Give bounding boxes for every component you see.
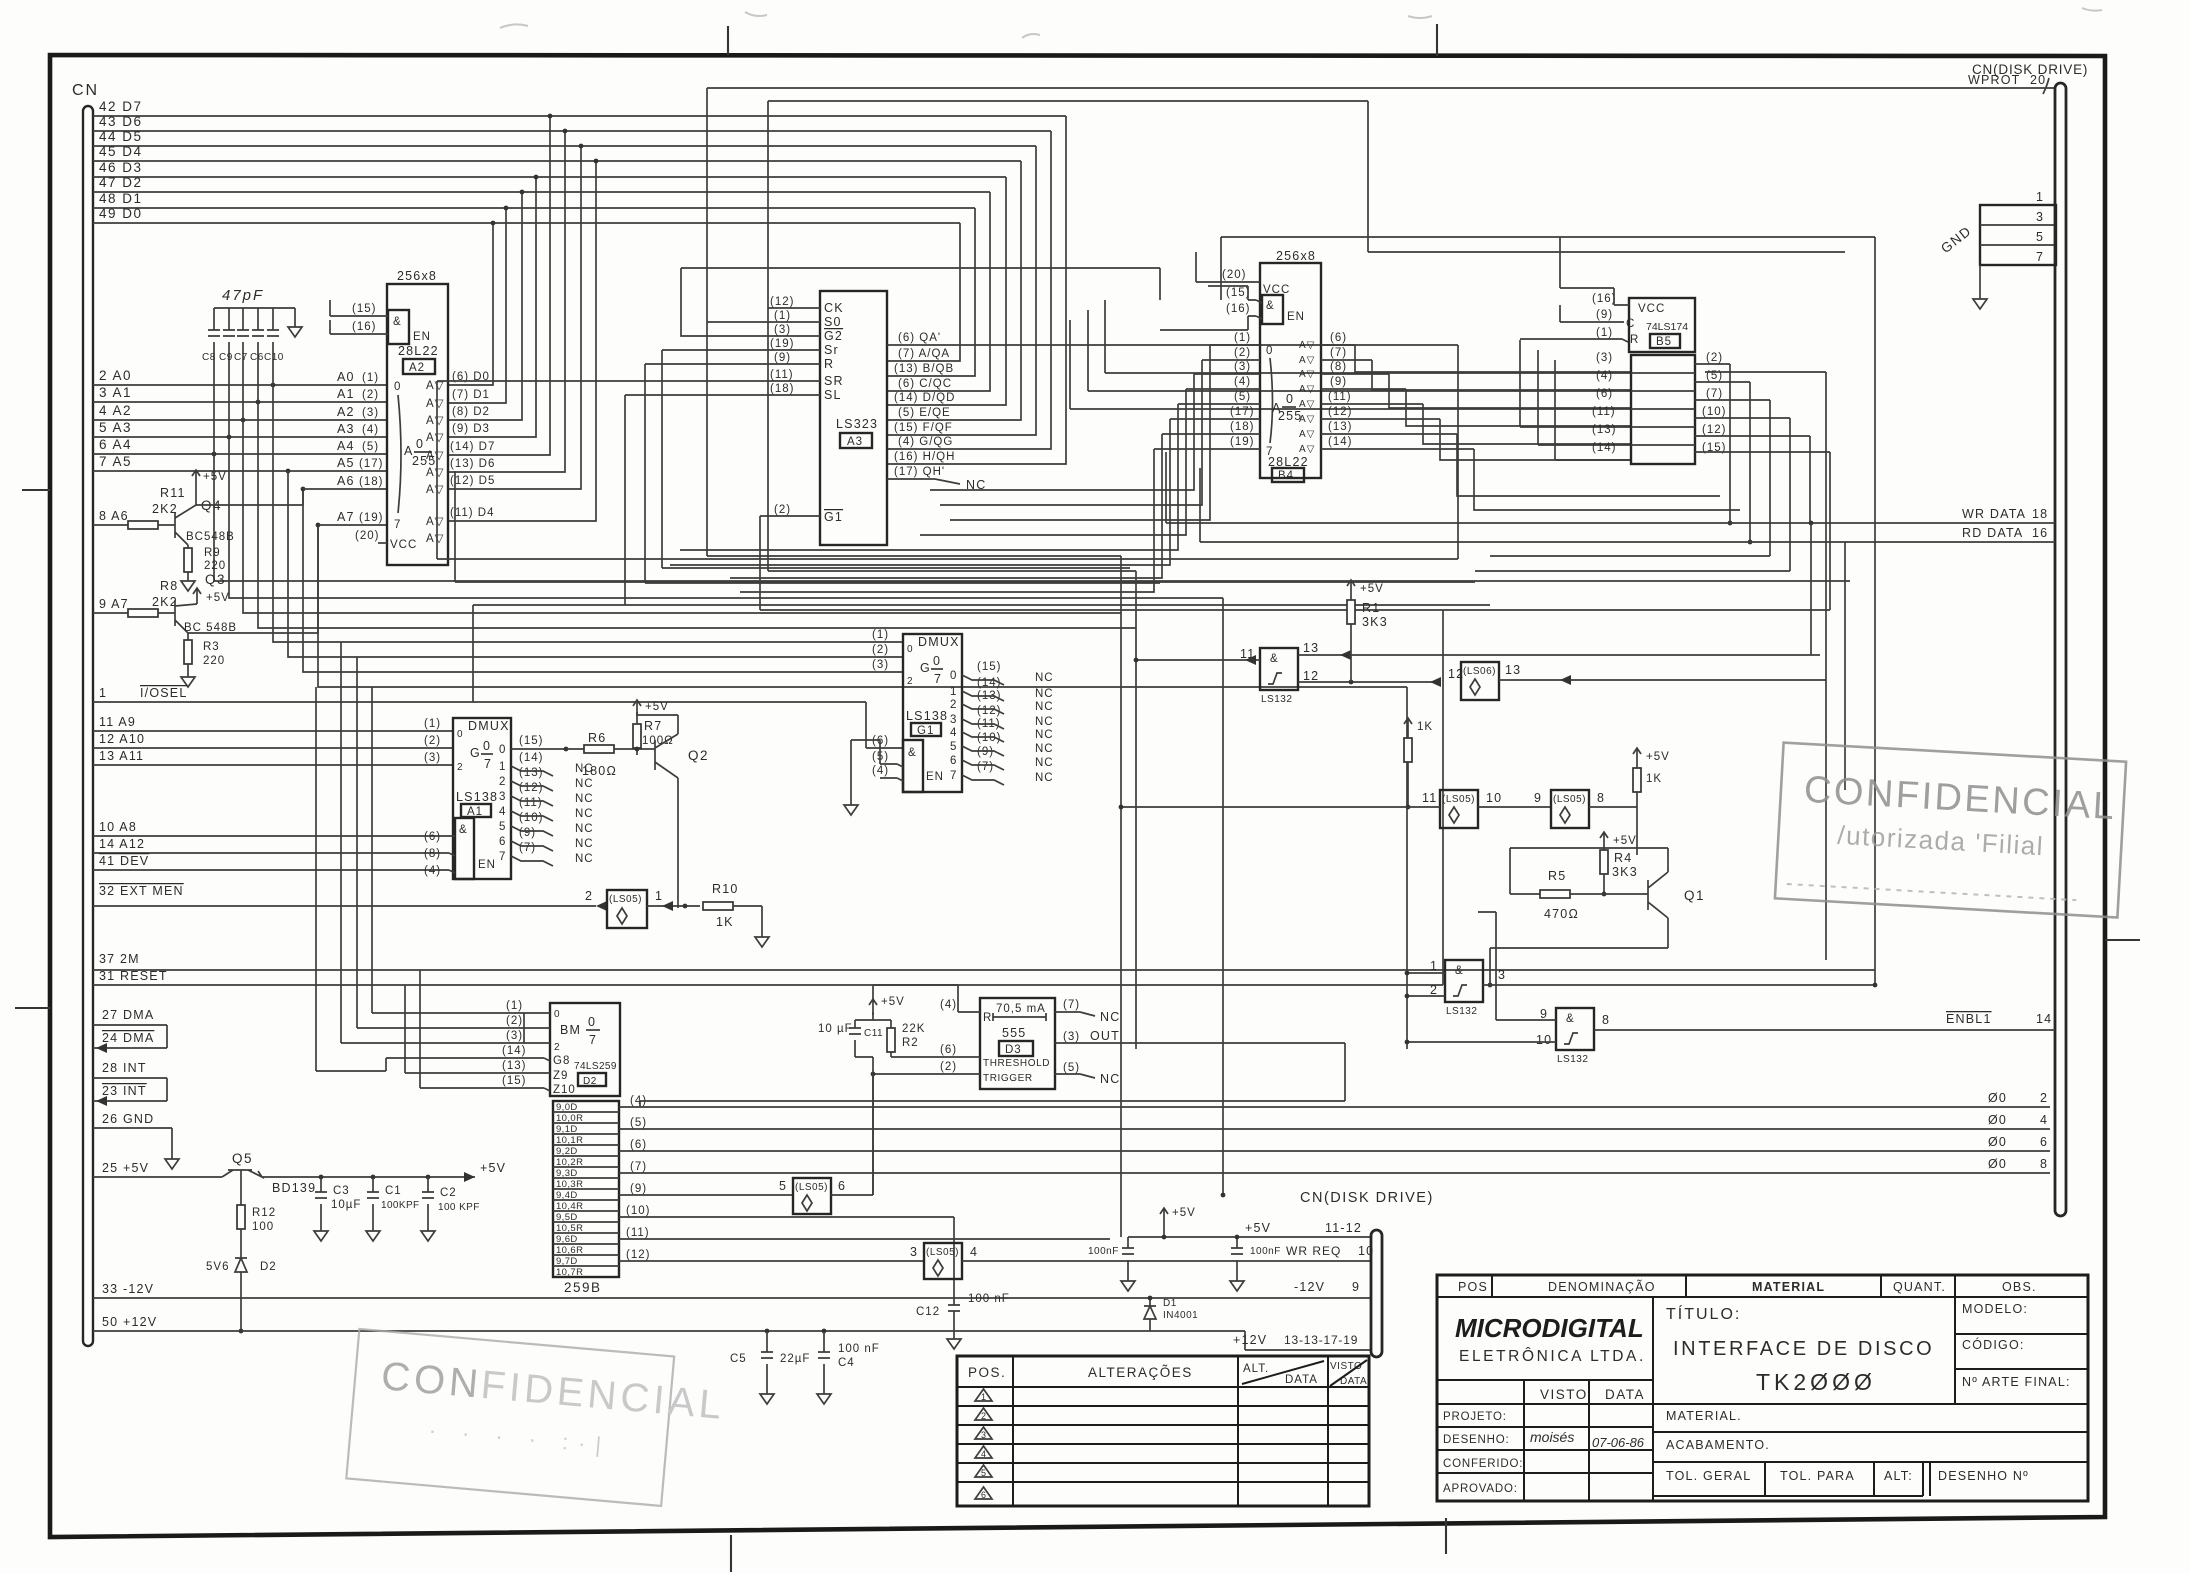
svg-text:NC: NC	[575, 778, 594, 790]
svg-text:NC: NC	[1035, 716, 1054, 728]
svg-text:S0: S0	[824, 315, 842, 329]
svg-text:0: 0	[554, 1009, 560, 1020]
svg-text:180Ω: 180Ω	[582, 764, 617, 778]
svg-text:VCC: VCC	[390, 539, 417, 551]
svg-text:MATERIAL.: MATERIAL.	[1666, 1409, 1742, 1423]
svg-text:R12: R12	[252, 1207, 276, 1219]
svg-text:10,5R: 10,5R	[556, 1223, 583, 1234]
svg-text:G1: G1	[917, 725, 934, 737]
svg-text:470Ω: 470Ω	[1544, 907, 1579, 921]
svg-text:R5: R5	[1548, 869, 1566, 883]
svg-text:(2): (2)	[1234, 347, 1251, 359]
svg-text:(3): (3)	[1063, 1031, 1080, 1043]
svg-text:(3): (3)	[362, 407, 379, 419]
svg-text:47pF: 47pF	[222, 287, 264, 304]
svg-text:2: 2	[457, 762, 463, 773]
svg-text:CONFERIDO:: CONFERIDO:	[1443, 1458, 1523, 1470]
svg-text:C4: C4	[838, 1357, 855, 1369]
svg-text:TÍTULO:: TÍTULO:	[1666, 1304, 1741, 1323]
svg-text:A5: A5	[337, 456, 355, 470]
svg-text:(1): (1)	[774, 310, 791, 322]
svg-text:OBS.: OBS.	[2002, 1280, 2037, 1294]
svg-text:5 A3: 5 A3	[99, 420, 132, 435]
svg-text:2: 2	[907, 676, 913, 687]
svg-text:(LS05): (LS05)	[1553, 794, 1586, 805]
svg-text:5: 5	[2036, 230, 2044, 244]
svg-text:ELETRÔNICA LTDA.: ELETRÔNICA LTDA.	[1459, 1348, 1646, 1365]
svg-text:IN4001: IN4001	[1163, 1310, 1198, 1321]
svg-text:10 A8: 10 A8	[99, 820, 137, 834]
svg-text:(9): (9)	[1330, 376, 1347, 388]
svg-text:46 D3: 46 D3	[99, 160, 143, 175]
svg-text:(9): (9)	[519, 827, 536, 839]
svg-text:7: 7	[589, 1033, 597, 1047]
svg-text:Sr: Sr	[824, 343, 839, 357]
svg-text:259B: 259B	[564, 1280, 602, 1295]
svg-text:12: 12	[1303, 669, 1319, 683]
svg-text:10: 10	[1486, 791, 1502, 805]
svg-text:4 A2: 4 A2	[99, 403, 132, 418]
svg-text:PROJETO:: PROJETO:	[1443, 1411, 1507, 1423]
svg-text:G: G	[920, 661, 931, 675]
svg-text:ALT.: ALT.	[1243, 1363, 1269, 1375]
svg-text:2 A0: 2 A0	[99, 368, 132, 383]
svg-text:10 µF: 10 µF	[818, 1023, 853, 1035]
svg-text:R9: R9	[204, 547, 221, 559]
svg-text:(18): (18)	[359, 476, 383, 488]
svg-text:1K: 1K	[1646, 773, 1662, 785]
svg-text:13 A11: 13 A11	[99, 749, 144, 763]
svg-text:100nF: 100nF	[1250, 1246, 1281, 1257]
svg-text:3K3: 3K3	[1362, 615, 1388, 629]
svg-text:TOL. GERAL: TOL. GERAL	[1666, 1469, 1751, 1483]
svg-text:(15): (15)	[519, 735, 543, 747]
svg-text:B4: B4	[1278, 470, 1294, 482]
svg-text:(LS05): (LS05)	[609, 894, 642, 905]
svg-text:(14): (14)	[519, 752, 543, 764]
svg-text:Ø0: Ø0	[1988, 1157, 2007, 1171]
svg-text:NC: NC	[575, 808, 594, 820]
svg-text:A1: A1	[337, 387, 355, 401]
svg-text:TK2ØØØ: TK2ØØØ	[1756, 1369, 1876, 1395]
svg-text:G1: G1	[824, 510, 843, 524]
svg-text:4: 4	[981, 1449, 986, 1459]
svg-text:(13) B/QB: (13) B/QB	[894, 363, 954, 375]
svg-text:2: 2	[554, 1042, 560, 1053]
svg-text:R4: R4	[1614, 851, 1632, 865]
svg-text:3: 3	[499, 791, 506, 803]
svg-text:NC: NC	[575, 838, 594, 850]
svg-text:(6): (6)	[424, 831, 441, 843]
svg-text:6: 6	[499, 836, 506, 848]
svg-text:(14): (14)	[977, 677, 1001, 689]
svg-text:100Ω: 100Ω	[642, 735, 674, 747]
svg-text:R: R	[824, 357, 834, 371]
svg-text:(5): (5)	[630, 1117, 647, 1129]
svg-text:C3: C3	[333, 1185, 350, 1197]
svg-text:1: 1	[655, 889, 663, 903]
svg-text:(18): (18)	[1230, 421, 1254, 433]
svg-text:(8): (8)	[1330, 361, 1347, 373]
svg-text:(5) E/QE: (5) E/QE	[898, 407, 951, 419]
svg-text:(5): (5)	[1063, 1062, 1080, 1074]
svg-text:(2): (2)	[774, 504, 791, 516]
svg-text:(2): (2)	[424, 735, 441, 747]
svg-text:(11): (11)	[770, 369, 794, 381]
svg-text:(11): (11)	[1592, 406, 1616, 418]
svg-text:(3): (3)	[774, 324, 791, 336]
svg-text:6: 6	[950, 755, 957, 767]
svg-text:(9): (9)	[977, 746, 994, 758]
svg-text:(13): (13)	[1592, 424, 1616, 436]
svg-text:WR REQ: WR REQ	[1286, 1244, 1341, 1258]
svg-text:(4): (4)	[362, 424, 379, 436]
svg-text:49 D0: 49 D0	[99, 206, 143, 221]
svg-text:C7: C7	[234, 352, 248, 363]
svg-text:A▽: A▽	[426, 450, 445, 462]
svg-text:(11) D4: (11) D4	[450, 507, 495, 519]
svg-text:7: 7	[950, 770, 957, 782]
svg-text:2: 2	[585, 889, 593, 903]
svg-text:R3: R3	[203, 641, 220, 653]
svg-text:(14) D/QD: (14) D/QD	[894, 392, 955, 404]
svg-text:0: 0	[907, 644, 913, 655]
svg-text:555: 555	[1002, 1026, 1026, 1040]
svg-text:10,1R: 10,1R	[556, 1135, 583, 1146]
svg-text:(2): (2)	[362, 389, 379, 401]
svg-text:DESENHO:: DESENHO:	[1443, 1434, 1509, 1446]
svg-text:C1: C1	[385, 1185, 402, 1197]
svg-text:32 EXT MEN: 32 EXT MEN	[99, 884, 184, 898]
svg-text:2: 2	[499, 776, 506, 788]
svg-text:12 A10: 12 A10	[99, 732, 145, 746]
svg-text:A2: A2	[409, 362, 425, 374]
svg-text:QUANT.: QUANT.	[1893, 1280, 1946, 1294]
svg-text:R1: R1	[1362, 601, 1380, 615]
svg-text:Ø0: Ø0	[1988, 1091, 2007, 1105]
svg-text:LS132: LS132	[1261, 694, 1292, 705]
svg-text:C10: C10	[264, 352, 284, 363]
svg-text:EN: EN	[478, 859, 496, 871]
svg-text:(2): (2)	[872, 644, 889, 656]
svg-text:(18): (18)	[770, 383, 794, 395]
svg-text:THRESHOLD: THRESHOLD	[983, 1058, 1050, 1069]
svg-text:4: 4	[970, 1245, 978, 1259]
svg-text:C8: C8	[202, 352, 216, 363]
svg-text:BD139: BD139	[272, 1181, 316, 1195]
svg-text:(3): (3)	[424, 752, 441, 764]
svg-text:7: 7	[934, 672, 942, 686]
svg-text:(1): (1)	[362, 372, 379, 384]
svg-text:9,6D: 9,6D	[556, 1234, 578, 1245]
svg-text:07-06-86: 07-06-86	[1592, 1435, 1645, 1450]
svg-text:+5V: +5V	[1360, 583, 1384, 595]
svg-text:(7): (7)	[630, 1161, 647, 1173]
svg-text:(17) QH': (17) QH'	[894, 466, 945, 478]
svg-text:+5V: +5V	[206, 592, 230, 604]
svg-text:26 GND: 26 GND	[102, 1112, 154, 1126]
svg-text:NC: NC	[575, 823, 594, 835]
svg-text:(LS05): (LS05)	[926, 1247, 959, 1258]
svg-text:(16) H/QH: (16) H/QH	[894, 451, 955, 463]
svg-text:0: 0	[483, 739, 491, 753]
svg-text:+12V: +12V	[1233, 1333, 1267, 1347]
svg-text:(7) D1: (7) D1	[452, 389, 490, 401]
svg-text:9,1D: 9,1D	[556, 1124, 578, 1135]
svg-text:R: R	[983, 1012, 992, 1024]
svg-text:2: 2	[1430, 983, 1438, 997]
svg-text:C6: C6	[250, 352, 264, 363]
svg-text:&: &	[459, 824, 468, 836]
svg-text:POS.: POS.	[968, 1365, 1006, 1380]
svg-text:7: 7	[499, 851, 506, 863]
svg-text:+5V: +5V	[881, 996, 905, 1008]
svg-text:3: 3	[950, 714, 957, 726]
svg-text:3: 3	[1498, 968, 1506, 982]
svg-text:MICRODIGITAL: MICRODIGITAL	[1455, 1313, 1644, 1343]
svg-text:9,7D: 9,7D	[556, 1256, 578, 1267]
svg-text:0: 0	[416, 437, 424, 451]
svg-text:2: 2	[981, 1411, 986, 1421]
svg-text:(12): (12)	[770, 296, 794, 308]
svg-text:22K: 22K	[902, 1023, 925, 1035]
svg-text:(15): (15)	[977, 661, 1001, 673]
svg-text:7: 7	[2036, 250, 2044, 264]
svg-text:9: 9	[1534, 791, 1542, 805]
svg-text:A▽: A▽	[426, 484, 445, 496]
svg-text:CON: CON	[379, 1354, 483, 1407]
svg-text:ENBL1: ENBL1	[1946, 1012, 1992, 1026]
svg-text:44 D5: 44 D5	[99, 129, 143, 144]
svg-text:100 KPF: 100 KPF	[438, 1202, 480, 1213]
svg-text:220: 220	[204, 560, 226, 572]
svg-text:(LS06): (LS06)	[1463, 666, 1496, 677]
svg-text:APROVADO:: APROVADO:	[1443, 1483, 1518, 1495]
svg-text:(15): (15)	[1226, 287, 1250, 299]
svg-text:A▽: A▽	[1299, 399, 1315, 410]
svg-text:(16): (16)	[1592, 293, 1616, 305]
svg-text:7: 7	[484, 757, 492, 771]
svg-text:A▽: A▽	[426, 533, 445, 545]
svg-text:100 nF: 100 nF	[968, 1293, 1010, 1305]
svg-text:(3): (3)	[1234, 361, 1251, 373]
svg-text:(12): (12)	[626, 1249, 650, 1261]
svg-text:13: 13	[1303, 641, 1319, 655]
svg-text:3 A1: 3 A1	[99, 385, 132, 400]
svg-text:(15): (15)	[352, 303, 376, 315]
svg-text:(12): (12)	[519, 782, 543, 794]
svg-text:31 RESET: 31 RESET	[99, 969, 168, 983]
svg-text:0: 0	[457, 729, 463, 740]
svg-text:DATA: DATA	[1340, 1376, 1367, 1387]
svg-text:10µF: 10µF	[331, 1199, 361, 1211]
svg-text:D2: D2	[583, 1076, 597, 1087]
svg-text:(1): (1)	[506, 1000, 523, 1012]
svg-text:(14): (14)	[1328, 436, 1352, 448]
svg-text:10,4R: 10,4R	[556, 1201, 583, 1212]
svg-text:1K: 1K	[716, 915, 734, 929]
svg-text:(20): (20)	[1222, 269, 1246, 281]
svg-text:ALT:: ALT:	[1884, 1469, 1913, 1483]
svg-text:(3): (3)	[1596, 352, 1613, 364]
svg-text:A▽: A▽	[426, 432, 445, 444]
svg-text:R7: R7	[644, 719, 662, 733]
svg-text:0: 0	[1286, 392, 1294, 406]
svg-text:(9): (9)	[1596, 309, 1613, 321]
svg-text:8 A6: 8 A6	[99, 509, 129, 523]
svg-text:25 +5V: 25 +5V	[102, 1161, 149, 1175]
svg-text:28L22: 28L22	[398, 344, 439, 358]
svg-text:POS: POS	[1458, 1280, 1488, 1294]
svg-text:A▽: A▽	[1299, 340, 1315, 351]
svg-text:Z9: Z9	[553, 1070, 568, 1082]
svg-text:(1): (1)	[1596, 327, 1613, 339]
svg-text:(LS05): (LS05)	[795, 1182, 828, 1193]
svg-text:WPROT: WPROT	[1968, 73, 2021, 87]
svg-text:6 A4: 6 A4	[99, 437, 132, 452]
svg-text:I/OSEL: I/OSEL	[140, 686, 188, 700]
svg-text:Q5: Q5	[232, 1151, 253, 1166]
svg-text:(14): (14)	[1592, 442, 1616, 454]
svg-text:&: &	[908, 747, 917, 759]
svg-text:3: 3	[981, 1430, 986, 1440]
svg-text:74LS259: 74LS259	[574, 1061, 617, 1072]
svg-text:A▽: A▽	[426, 516, 445, 528]
svg-text:A3: A3	[847, 436, 863, 448]
svg-text:VCC: VCC	[1638, 303, 1665, 315]
svg-text:CN(DISK DRIVE): CN(DISK DRIVE)	[1300, 1190, 1434, 1206]
svg-text:D3: D3	[1005, 1044, 1022, 1056]
svg-text:(15): (15)	[502, 1075, 526, 1087]
svg-text:220: 220	[203, 655, 225, 667]
svg-text:G8: G8	[553, 1055, 570, 1067]
svg-text:NC: NC	[1035, 757, 1054, 769]
svg-text:(2): (2)	[506, 1015, 523, 1027]
svg-text:100nF: 100nF	[1088, 1246, 1119, 1257]
svg-text:3: 3	[910, 1245, 918, 1259]
svg-text:(1): (1)	[424, 718, 441, 730]
svg-text:(7): (7)	[1063, 999, 1080, 1011]
svg-text:9 A7: 9 A7	[99, 597, 129, 611]
svg-text:18: 18	[2032, 507, 2048, 521]
svg-text:3K3: 3K3	[1612, 865, 1638, 879]
svg-text:0: 0	[1266, 345, 1273, 357]
svg-text:(14): (14)	[502, 1045, 526, 1057]
svg-text:(7) A/QA: (7) A/QA	[898, 348, 950, 360]
svg-text:A▽: A▽	[1299, 369, 1315, 380]
svg-text:42 D7: 42 D7	[99, 99, 143, 114]
svg-text:MATERIAL: MATERIAL	[1752, 1280, 1825, 1294]
svg-text:9,3D: 9,3D	[556, 1168, 578, 1179]
svg-text:C11: C11	[864, 1028, 883, 1039]
svg-text:&: &	[1266, 300, 1275, 312]
svg-text:DMUX: DMUX	[918, 635, 960, 649]
svg-text:Q2: Q2	[688, 748, 709, 763]
svg-text:3: 3	[2036, 210, 2044, 224]
svg-text:C9: C9	[219, 352, 233, 363]
svg-text:A7: A7	[337, 510, 355, 524]
svg-text:D2: D2	[260, 1261, 277, 1273]
svg-text:NC: NC	[1035, 701, 1054, 713]
svg-text:(5): (5)	[1234, 391, 1251, 403]
svg-text:+5V: +5V	[645, 701, 669, 713]
svg-text:TRIGGER: TRIGGER	[983, 1073, 1033, 1084]
svg-text:(4): (4)	[872, 765, 889, 777]
svg-text:(4) G/QG: (4) G/QG	[898, 436, 953, 448]
svg-text:LS323: LS323	[836, 417, 878, 431]
svg-text:G2: G2	[824, 329, 843, 343]
svg-text:8: 8	[2040, 1157, 2048, 1171]
svg-text:(17): (17)	[1230, 406, 1254, 418]
svg-text:A0: A0	[337, 370, 355, 384]
svg-text:&: &	[393, 316, 402, 328]
svg-text:NC: NC	[1035, 688, 1054, 700]
svg-text:NC: NC	[575, 853, 594, 865]
svg-text:43 D6: 43 D6	[99, 114, 143, 129]
svg-text:G: G	[470, 746, 481, 760]
svg-text:2K2: 2K2	[152, 595, 178, 609]
svg-text:9,0D: 9,0D	[556, 1102, 578, 1113]
svg-text:R2: R2	[902, 1037, 919, 1049]
svg-text:EN: EN	[413, 331, 431, 343]
svg-text:(4): (4)	[940, 999, 957, 1011]
svg-text:5: 5	[950, 741, 957, 753]
svg-text:(16): (16)	[1226, 303, 1250, 315]
svg-text:(6): (6)	[630, 1139, 647, 1151]
svg-text:ALTERAÇÕES: ALTERAÇÕES	[1088, 1365, 1193, 1380]
svg-text:BM: BM	[560, 1023, 581, 1037]
svg-text:ACABAMENTO.: ACABAMENTO.	[1666, 1438, 1770, 1452]
svg-text:2: 2	[950, 699, 957, 711]
svg-text:27 DMA: 27 DMA	[102, 1008, 154, 1022]
svg-text:(13): (13)	[502, 1060, 526, 1072]
svg-text:1: 1	[2036, 190, 2044, 204]
svg-text:DMUX: DMUX	[468, 719, 510, 733]
svg-text:A4: A4	[337, 439, 355, 453]
svg-text:9: 9	[1352, 1280, 1360, 1294]
svg-text:C5: C5	[730, 1353, 747, 1365]
svg-text:EN: EN	[1287, 311, 1305, 323]
svg-text:DATA: DATA	[1605, 1387, 1645, 1402]
svg-text:C12: C12	[916, 1306, 940, 1318]
svg-text:A1: A1	[467, 806, 483, 818]
svg-text:10,6R: 10,6R	[556, 1245, 583, 1256]
svg-text:SR: SR	[824, 374, 844, 388]
svg-text:11-12: 11-12	[1325, 1221, 1362, 1235]
svg-text:10,7R: 10,7R	[556, 1267, 583, 1278]
svg-text:0: 0	[394, 381, 401, 393]
svg-text:(6) C/QC: (6) C/QC	[898, 378, 952, 390]
svg-text:Q3: Q3	[205, 572, 226, 587]
svg-text:A▽: A▽	[1299, 429, 1315, 440]
svg-text:CK: CK	[824, 301, 844, 315]
svg-text:INTERFACE DE DISCO: INTERFACE DE DISCO	[1673, 1338, 1934, 1360]
svg-text:MODELO:: MODELO:	[1962, 1302, 2028, 1316]
svg-text:C: C	[1626, 318, 1635, 330]
svg-text:(13): (13)	[1328, 421, 1352, 433]
svg-text:(8) D2: (8) D2	[452, 406, 490, 418]
svg-text:13-13-17-19: 13-13-17-19	[1284, 1333, 1358, 1347]
svg-text:(19): (19)	[1230, 436, 1254, 448]
svg-text:VISTO: VISTO	[1540, 1387, 1588, 1402]
svg-text:(14) D7: (14) D7	[450, 441, 495, 453]
svg-text:(12) D5: (12) D5	[450, 475, 495, 487]
svg-text:5V6: 5V6	[206, 1261, 229, 1273]
svg-text:45 D4: 45 D4	[99, 144, 143, 159]
svg-text:100 nF: 100 nF	[838, 1343, 880, 1355]
svg-text:41 DEV: 41 DEV	[99, 854, 149, 868]
svg-text:&: &	[1270, 653, 1279, 665]
